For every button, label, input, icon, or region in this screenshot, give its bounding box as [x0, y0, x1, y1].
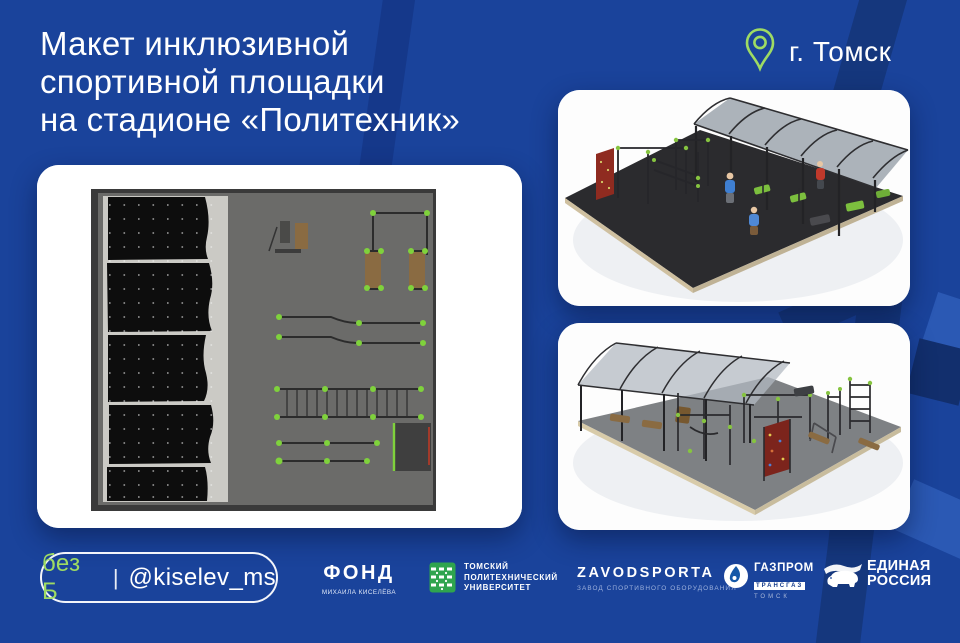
gazprom-title: ГАЗПРОМ [754, 562, 814, 574]
logo-gazprom-transgaz: ГАЗПРОМ ТРАНСГАЗ ТОМСК [722, 558, 814, 600]
black-mat-panels [107, 197, 213, 501]
card-render-back [558, 323, 910, 530]
social-handle: @kiselev_ms [129, 564, 276, 592]
location-label: г. Томск [789, 32, 891, 68]
logo-tomsk-polytechnic: ТОМСКИЙ ПОЛИТЕХНИЧЕСКИЙ УНИВЕРСИТЕТ [429, 562, 558, 594]
playground-render-1 [558, 90, 910, 306]
model-ramp [393, 423, 431, 471]
logo-united-russia: ЕДИНАЯ РОССИЯ [822, 559, 931, 589]
tpu-line-3: УНИВЕРСИТЕТ [464, 583, 558, 594]
location-pin-icon [744, 27, 776, 72]
zavodsporta-subtitle: ЗАВОД СПОРТИВНОГО ОБОРУДОВАНИЯ [577, 585, 737, 592]
badge-divider: | [113, 565, 119, 591]
location: г. Томск [744, 27, 891, 72]
playground-render-2 [558, 323, 910, 530]
slide-inclusive-playground: Макет инклюзивной спортивной площадки на… [0, 0, 960, 643]
tpu-line-2: ПОЛИТЕХНИЧЕСКИЙ [464, 573, 558, 584]
brand-badge: без Б | @kiselev_ms [40, 552, 278, 603]
card-render-front [558, 90, 910, 306]
card-top-view [37, 165, 522, 528]
er-line-1: ЕДИНАЯ [867, 559, 931, 574]
title-line-3: на стадионе «Политехник» [40, 101, 460, 139]
gazprom-subtitle: ТРАНСГАЗ [754, 582, 805, 590]
gazprom-flame-icon [722, 558, 750, 594]
page-title: Макет инклюзивной спортивной площадки на… [40, 25, 460, 139]
er-line-2: РОССИЯ [867, 574, 931, 589]
title-line-1: Макет инклюзивной [40, 25, 460, 63]
diagonal-accent [906, 338, 960, 405]
playground-top-view-photo [37, 165, 522, 528]
fond-subtitle: МИХАИЛА КИСЕЛЁВА [316, 589, 402, 596]
gazprom-region: ТОМСК [754, 594, 814, 600]
logo-fond-kiseleva: ФОНД МИХАИЛА КИСЕЛЁВА [316, 562, 402, 596]
tpu-line-1: ТОМСКИЙ [464, 562, 558, 573]
title-line-2: спортивной площадки [40, 63, 460, 101]
logo-zavodsporta: ZAVODSPORTA ЗАВОД СПОРТИВНОГО ОБОРУДОВАН… [577, 565, 737, 592]
tpu-emblem-icon [429, 562, 456, 593]
fond-title: ФОНД [316, 562, 402, 585]
brand-name: без Б [42, 550, 101, 606]
bear-icon [822, 559, 864, 589]
zavodsporta-title: ZAVODSPORTA [577, 565, 737, 581]
render-climbing-wall [596, 148, 614, 200]
